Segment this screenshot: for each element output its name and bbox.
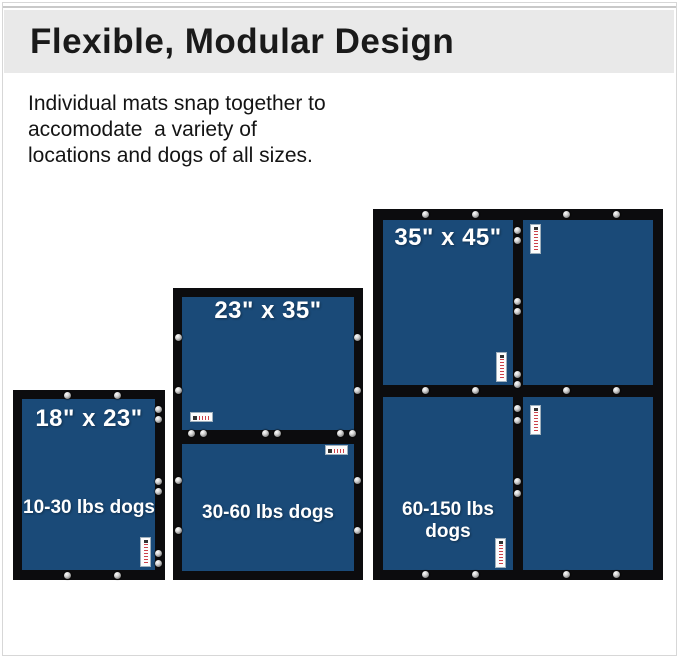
snap-fastener: [175, 387, 182, 394]
snap-fastener: [155, 488, 162, 495]
snap-fastener: [514, 381, 521, 388]
snap-fastener: [175, 477, 182, 484]
mat-weight-label: 30-60 lbs dogs: [173, 502, 363, 524]
snap-fastener: [175, 527, 182, 534]
snap-fastener: [514, 490, 521, 497]
snap-fastener: [514, 308, 521, 315]
snap-fastener: [514, 371, 521, 378]
brand-tag: [140, 537, 151, 567]
snap-fastener: [472, 571, 479, 578]
snap-fastener: [563, 211, 570, 218]
snap-fastener: [354, 527, 361, 534]
brand-tag: [496, 352, 507, 382]
snap-fastener: [175, 334, 182, 341]
brand-tag: [530, 224, 541, 254]
product-infographic: Flexible, Modular Design Individual mats…: [0, 0, 679, 658]
snap-fastener: [155, 416, 162, 423]
mat-size-label: 35" x 45": [383, 224, 513, 252]
snap-fastener: [613, 211, 620, 218]
snap-fastener: [514, 227, 521, 234]
mat-config-small: 18" x 23" 10-30 lbs dogs: [13, 390, 165, 580]
mat-config-medium: 23" x 35" 30-60 lbs dogs: [173, 288, 363, 580]
mat-weight-label: 10-30 lbs dogs: [13, 497, 165, 519]
snap-fastener: [514, 237, 521, 244]
snap-fastener: [613, 387, 620, 394]
mat-panel: [523, 220, 653, 385]
mat-weight-label: 60-150 lbs dogs: [383, 499, 513, 543]
mat-size-label: 23" x 35": [173, 297, 363, 325]
snap-fastener: [514, 298, 521, 305]
snap-fastener: [188, 430, 195, 437]
snap-fastener: [563, 571, 570, 578]
page-title: Flexible, Modular Design: [30, 22, 454, 62]
snap-fastener: [422, 211, 429, 218]
snap-fastener: [114, 392, 121, 399]
snap-fastener: [354, 334, 361, 341]
description: Individual mats snap together to accomod…: [28, 91, 326, 169]
header-band: Flexible, Modular Design: [4, 10, 674, 73]
header-top-rule: [3, 6, 676, 8]
snap-fastener: [354, 477, 361, 484]
snap-fastener: [514, 417, 521, 424]
snap-fastener: [64, 392, 71, 399]
brand-tag: [190, 412, 213, 422]
description-line: locations and dogs of all sizes.: [28, 143, 326, 169]
snap-fastener: [155, 550, 162, 557]
description-line: Individual mats snap together to: [28, 91, 326, 117]
snap-fastener: [200, 430, 207, 437]
mat-panel: [383, 397, 513, 570]
snap-fastener: [274, 430, 281, 437]
snap-fastener: [155, 560, 162, 567]
snap-fastener: [472, 211, 479, 218]
snap-fastener: [422, 571, 429, 578]
description-line: accomodate a variety of: [28, 117, 326, 143]
mat-size-label: 18" x 23": [13, 405, 165, 433]
snap-fastener: [472, 387, 479, 394]
mat-panel: [523, 397, 653, 570]
snap-fastener: [422, 387, 429, 394]
brand-tag: [325, 445, 348, 455]
snap-fastener: [155, 478, 162, 485]
snap-fastener: [514, 478, 521, 485]
snap-fastener: [514, 405, 521, 412]
snap-fastener: [337, 430, 344, 437]
brand-tag: [495, 538, 506, 568]
mat-config-large: 35" x 45" 60-150 lbs dogs: [373, 209, 663, 580]
snap-fastener: [64, 572, 71, 579]
snap-fastener: [349, 430, 356, 437]
snap-fastener: [155, 406, 162, 413]
snap-fastener: [563, 387, 570, 394]
brand-tag: [530, 405, 541, 435]
snap-fastener: [613, 571, 620, 578]
snap-fastener: [354, 387, 361, 394]
snap-fastener: [262, 430, 269, 437]
snap-fastener: [114, 572, 121, 579]
